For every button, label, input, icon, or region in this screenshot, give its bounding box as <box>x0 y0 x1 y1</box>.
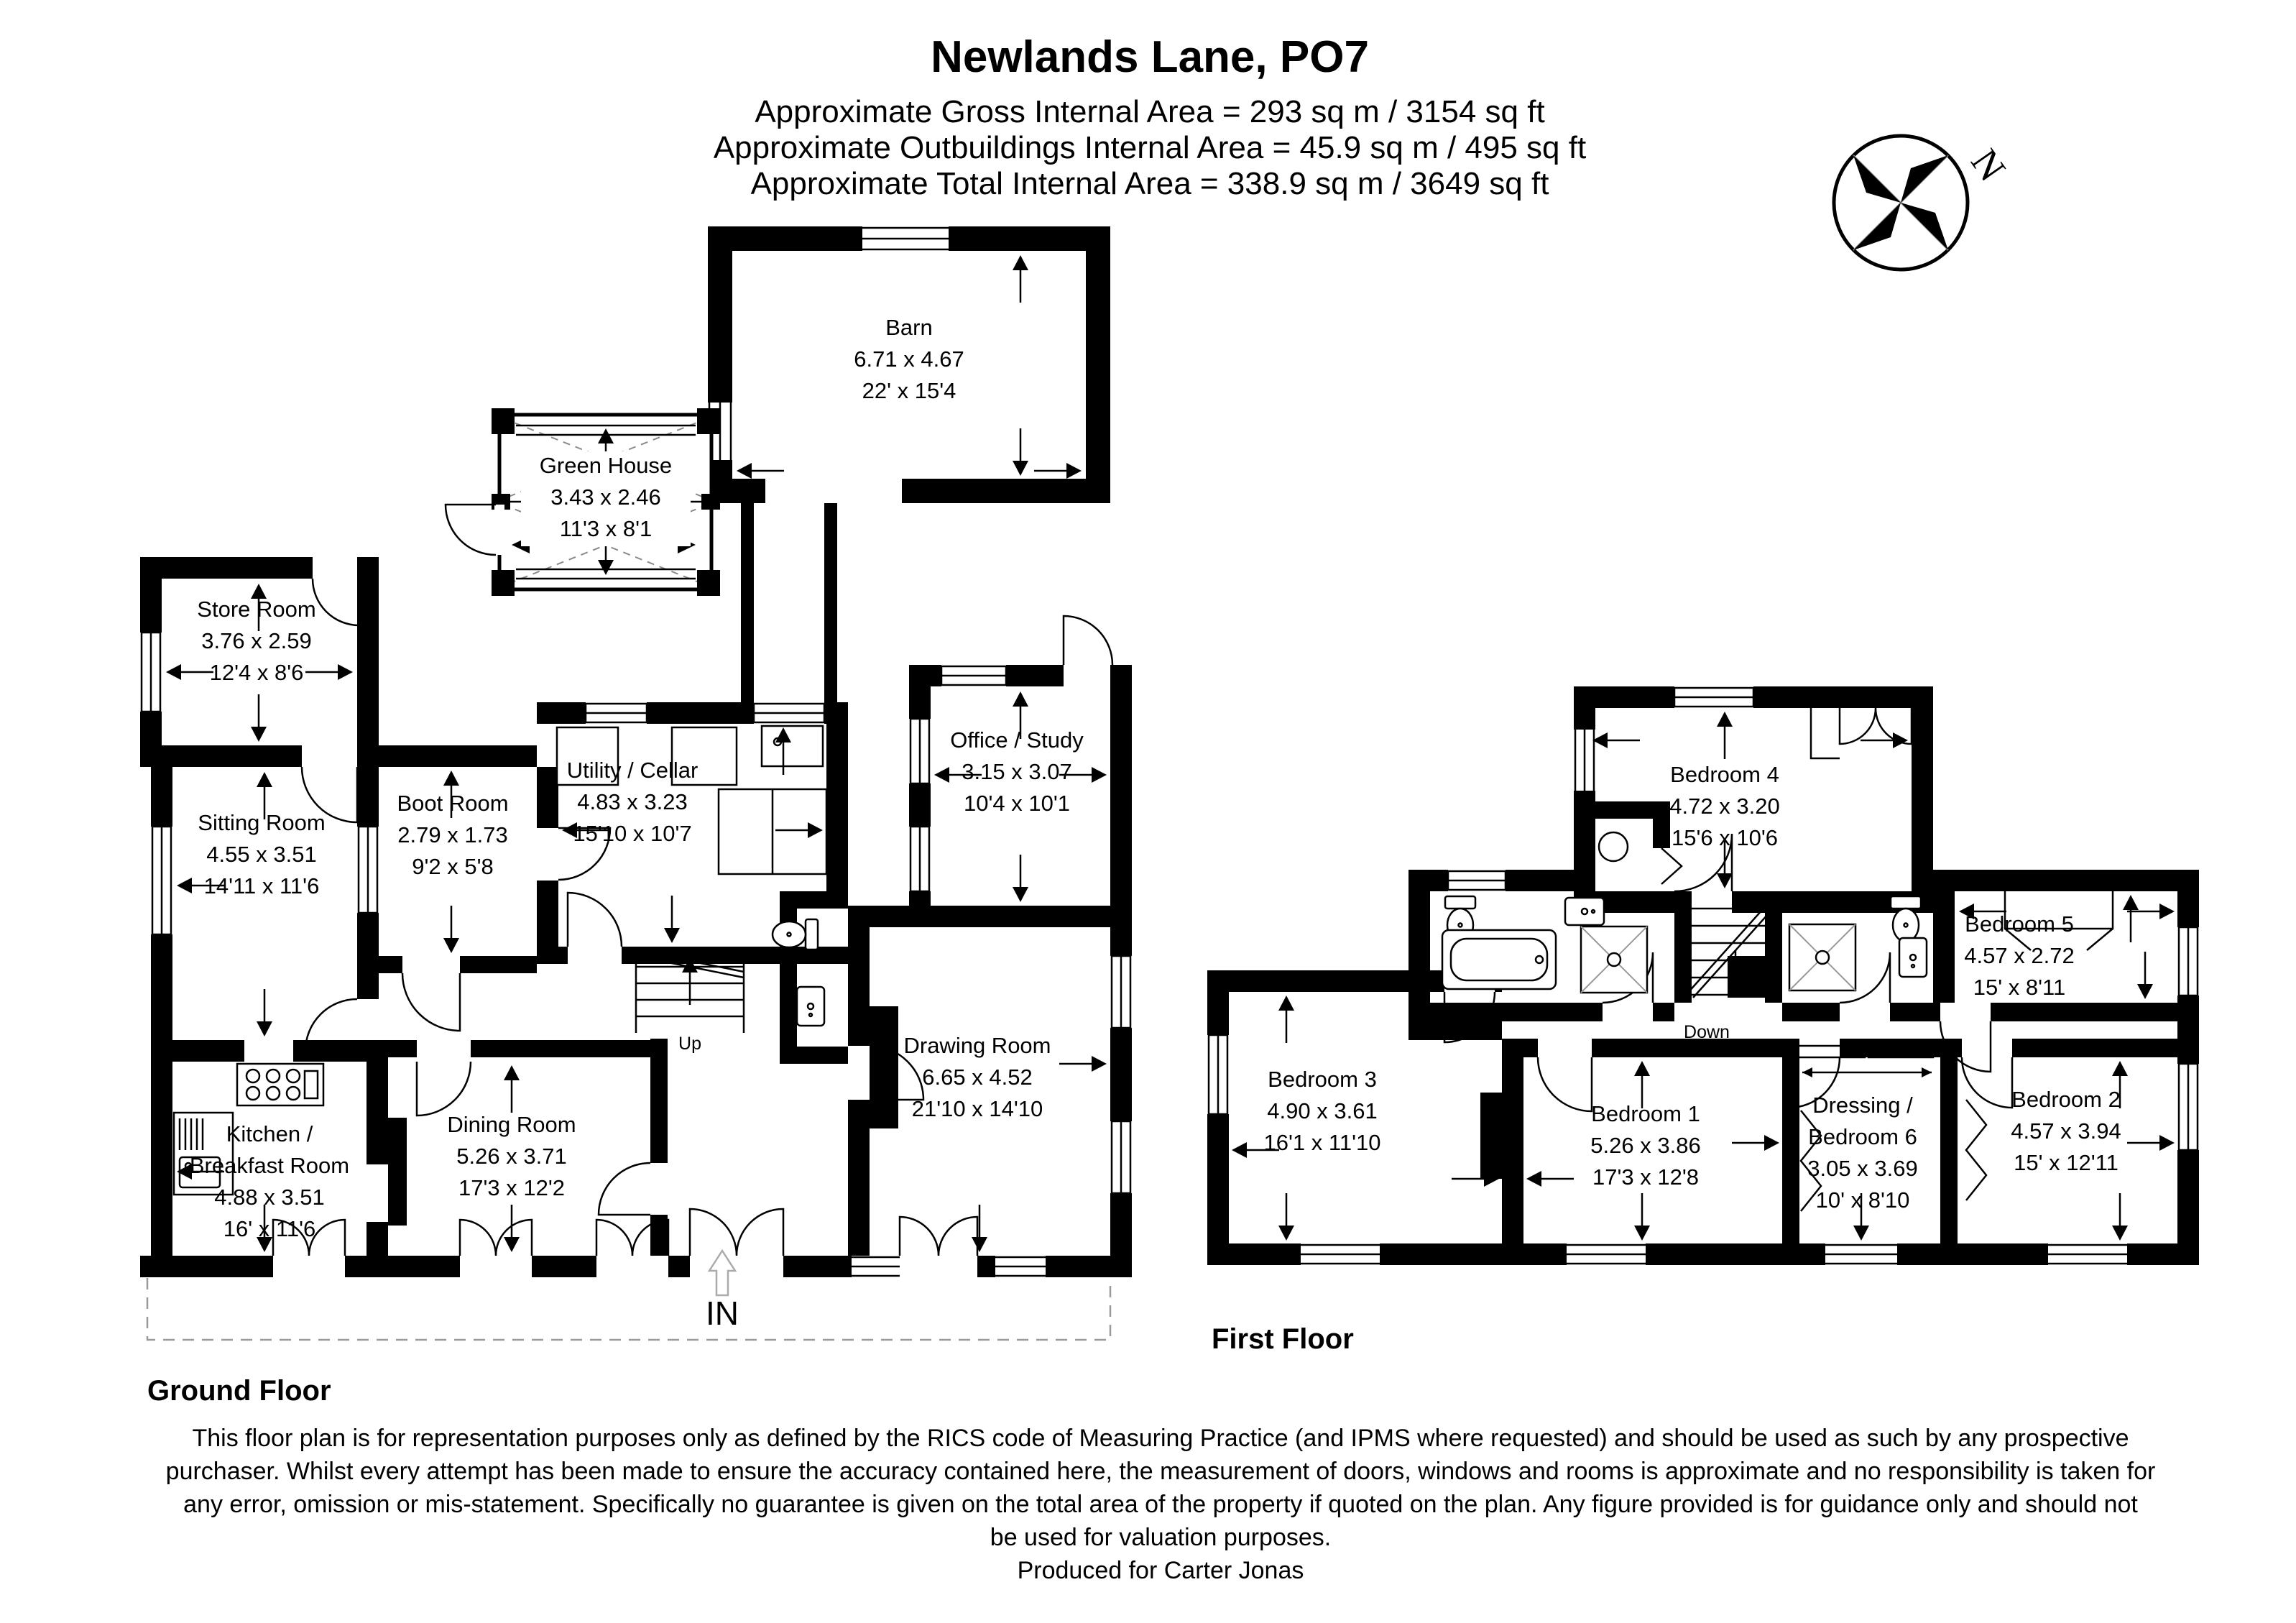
room-dim-metric: 5.26 x 3.71 <box>456 1144 566 1169</box>
room-name: Drawing Room <box>903 1033 1051 1058</box>
room-dim-imperial: 17'3 x 12'8 <box>1592 1164 1699 1190</box>
room-dim-imperial: 21'10 x 14'10 <box>912 1096 1043 1121</box>
room-label-store: Store Room 3.76 x 2.59 12'4 x 8'6 <box>197 597 315 685</box>
produced-for-line: Produced for Carter Jonas <box>1018 1557 1304 1584</box>
room-label-dining: Dining Room 5.26 x 3.71 17'3 x 12'2 <box>447 1112 576 1200</box>
room-dim-metric: 4.83 x 3.23 <box>577 789 687 814</box>
room-dim-metric: 4.55 x 3.51 <box>206 842 316 867</box>
room-dim-metric: 4.57 x 2.72 <box>1964 943 2074 968</box>
room-dim-imperial: 17'3 x 12'2 <box>458 1175 565 1200</box>
cooktop-icon <box>237 1064 323 1105</box>
room-label-greenhouse: Green House 3.43 x 2.46 11'3 x 8'1 <box>521 451 691 546</box>
first-floor-plan: Down <box>1207 686 2199 1355</box>
compass-icon: N <box>1834 136 2014 270</box>
room-dim-imperial: 22' x 15'4 <box>862 378 956 403</box>
room-label-office: Office / Study 3.15 x 3.07 10'4 x 10'1 <box>950 727 1084 816</box>
room-label-utility: Utility / Cellar 4.83 x 3.23 15'10 x 10'… <box>567 758 699 846</box>
room-label-drawing: Drawing Room 6.65 x 4.52 21'10 x 14'10 <box>903 1033 1051 1121</box>
room-name-line2: Bedroom 6 <box>1808 1124 1917 1149</box>
room-dim-metric: 4.72 x 3.20 <box>1669 794 1779 819</box>
floorplan-canvas: Newlands Lane, PO7 Approximate Gross Int… <box>0 0 2296 1623</box>
stairs-down-label: Down <box>1684 1022 1730 1042</box>
room-dim-metric: 6.65 x 4.52 <box>922 1065 1032 1090</box>
ground-floor-plan: IN Up Barn 6.71 x 4.67 22' x 15'4 Green … <box>140 226 1132 1407</box>
floorplan-page: Newlands Lane, PO7 Approximate Gross Int… <box>0 0 2296 1623</box>
room-label-barn: Barn 6.71 x 4.67 22' x 15'4 <box>854 315 964 403</box>
room-dim-imperial: 15'6 x 10'6 <box>1672 825 1778 850</box>
room-name: Boot Room <box>397 791 508 816</box>
room-dim-imperial: 10'4 x 10'1 <box>964 791 1070 816</box>
gross-area-line: Approximate Gross Internal Area = 293 sq… <box>755 94 1544 129</box>
room-label-bedroom3: Bedroom 3 4.90 x 3.61 16'1 x 11'10 <box>1264 1067 1381 1155</box>
room-dim-imperial: 16'1 x 11'10 <box>1264 1130 1381 1155</box>
room-dim-metric: 2.79 x 1.73 <box>397 822 507 847</box>
room-name: Bedroom 5 <box>1965 911 2074 937</box>
room-dim-metric: 6.71 x 4.67 <box>854 346 964 372</box>
room-dim-imperial: 12'4 x 8'6 <box>210 660 304 685</box>
room-name: Sitting Room <box>198 810 325 835</box>
footer-disclaimer: This floor plan is for representation pu… <box>166 1425 2156 1584</box>
room-dim-metric: 3.76 x 2.59 <box>201 628 311 653</box>
room-dim-imperial: 10' x 8'10 <box>1816 1187 1910 1213</box>
room-label-bedroom2: Bedroom 2 4.57 x 3.94 15' x 12'11 <box>2011 1087 2121 1175</box>
page-title: Newlands Lane, PO7 <box>931 32 1369 82</box>
room-name: Bedroom 3 <box>1268 1067 1377 1092</box>
room-name-line1: Kitchen / <box>226 1121 313 1146</box>
room-name: Bedroom 1 <box>1591 1101 1700 1126</box>
room-name: Green House <box>540 453 672 478</box>
room-dim-imperial: 15' x 12'11 <box>2014 1150 2119 1175</box>
room-dim-metric: 3.05 x 3.69 <box>1807 1156 1917 1181</box>
entrance-arrow-icon <box>709 1251 735 1295</box>
disclaimer-line: purchaser. Whilst every attempt has been… <box>166 1458 2156 1485</box>
room-dim-metric: 3.43 x 2.46 <box>550 484 660 510</box>
room-label-sitting: Sitting Room 4.55 x 3.51 14'11 x 11'6 <box>198 810 325 898</box>
disclaimer-line: any error, omission or mis-statement. Sp… <box>183 1491 2138 1518</box>
header: Newlands Lane, PO7 Approximate Gross Int… <box>714 32 1586 201</box>
room-dim-imperial: 14'11 x 11'6 <box>204 873 320 898</box>
room-dim-metric: 3.15 x 3.07 <box>962 759 1071 784</box>
room-label-bedroom5: Bedroom 5 4.57 x 2.72 15' x 8'11 <box>1964 911 2074 1000</box>
room-dim-metric: 4.88 x 3.51 <box>214 1185 324 1210</box>
room-name: Bedroom 4 <box>1670 762 1779 787</box>
porch-boundary-dashes <box>147 1278 1110 1340</box>
room-name: Bedroom 2 <box>2011 1087 2121 1112</box>
disclaimer-line: This floor plan is for representation pu… <box>192 1425 2129 1452</box>
entrance-label: IN <box>706 1295 739 1332</box>
room-name: Utility / Cellar <box>567 758 699 783</box>
room-name: Office / Study <box>950 727 1084 753</box>
first-floor-label: First Floor <box>1212 1323 1354 1355</box>
room-dim-metric: 4.90 x 3.61 <box>1267 1098 1377 1123</box>
room-dim-imperial: 15'10 x 10'7 <box>573 821 691 846</box>
room-label-bedroom4: Bedroom 4 4.72 x 3.20 15'6 x 10'6 <box>1669 762 1779 850</box>
total-area-line: Approximate Total Internal Area = 338.9 … <box>751 166 1549 201</box>
room-label-bedroom1: Bedroom 1 5.26 x 3.86 17'3 x 12'8 <box>1590 1101 1700 1190</box>
room-name: Store Room <box>197 597 315 622</box>
room-dim-imperial: 9'2 x 5'8 <box>412 854 494 879</box>
room-name-line1: Dressing / <box>1812 1093 1913 1118</box>
room-name: Barn <box>885 315 932 340</box>
room-dim-imperial: 15' x 8'11 <box>1973 975 2065 1000</box>
room-name: Dining Room <box>447 1112 576 1137</box>
disclaimer-line: be used for valuation purposes. <box>990 1524 1331 1551</box>
outbuildings-area-line: Approximate Outbuildings Internal Area =… <box>714 130 1586 165</box>
room-dim-imperial: 11'3 x 8'1 <box>560 516 652 541</box>
room-dim-imperial: 16' x 11'6 <box>223 1216 315 1241</box>
room-dim-metric: 4.57 x 3.94 <box>2011 1118 2121 1144</box>
room-name-line2: Breakfast Room <box>190 1153 349 1178</box>
room-label-dressing6: Dressing / Bedroom 6 3.05 x 3.69 10' x 8… <box>1807 1093 1917 1213</box>
stairs-up-label: Up <box>678 1034 701 1054</box>
compass-north-label: N <box>1963 141 2014 188</box>
ground-floor-label: Ground Floor <box>147 1375 331 1407</box>
room-label-boot: Boot Room 2.79 x 1.73 9'2 x 5'8 <box>397 791 508 879</box>
room-dim-metric: 5.26 x 3.86 <box>1590 1133 1700 1158</box>
